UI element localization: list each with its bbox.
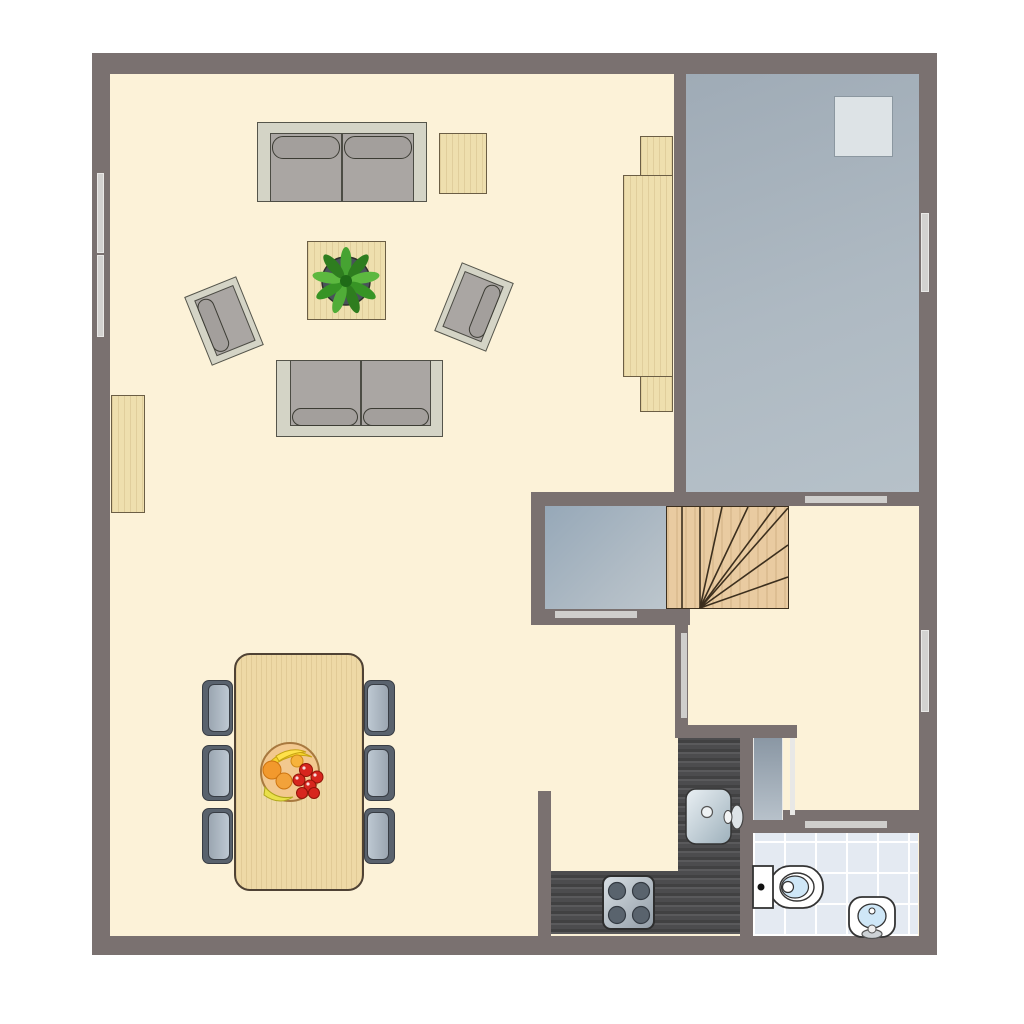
fruit-bowl-icon [261,743,323,801]
potted-plant-icon [312,247,381,315]
stove-icon [603,876,654,929]
toilet-icon [753,866,823,908]
floor-plan [0,0,1024,1024]
stairs-treads [682,507,788,608]
kitchen-sink-icon [686,789,743,844]
bathroom-sink-icon [849,897,895,939]
plan-details [0,0,1024,1024]
